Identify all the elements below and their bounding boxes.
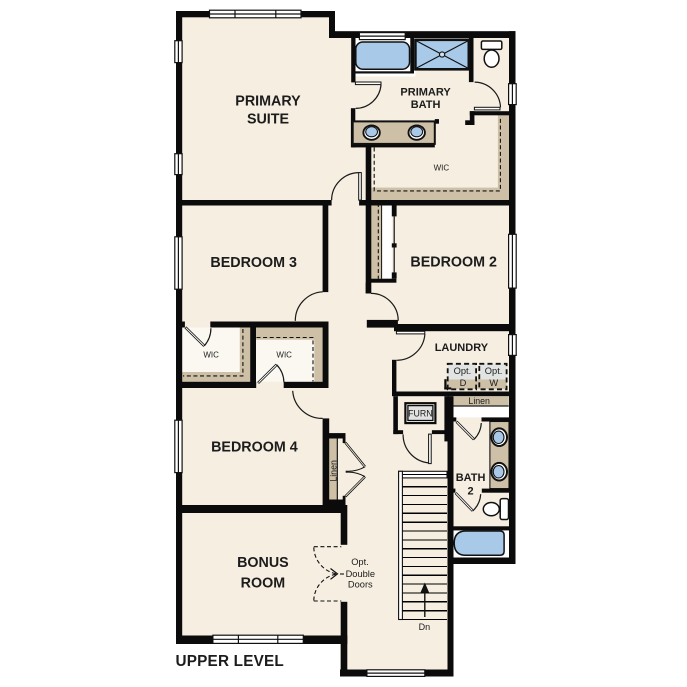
svg-text:PRIMARY: PRIMARY: [400, 86, 451, 98]
svg-text:Double: Double: [346, 569, 375, 579]
svg-text:Doors: Doors: [348, 579, 373, 589]
svg-text:BEDROOM 4: BEDROOM 4: [211, 440, 298, 456]
svg-text:FURN: FURN: [408, 409, 432, 419]
svg-text:SUITE: SUITE: [247, 111, 289, 127]
svg-text:W: W: [489, 378, 498, 388]
svg-text:LAUNDRY: LAUNDRY: [435, 342, 489, 354]
svg-text:WIC: WIC: [434, 164, 450, 173]
svg-text:D: D: [460, 378, 467, 388]
svg-text:ROOM: ROOM: [241, 576, 285, 592]
svg-text:WIC: WIC: [203, 351, 219, 360]
svg-text:Dn: Dn: [419, 622, 431, 632]
svg-text:2: 2: [468, 486, 474, 498]
svg-text:BATH: BATH: [456, 472, 486, 484]
svg-text:Opt.: Opt.: [351, 557, 369, 567]
svg-text:BATH: BATH: [411, 99, 441, 111]
svg-text:Linen: Linen: [468, 396, 490, 406]
svg-text:WIC: WIC: [276, 351, 292, 360]
svg-text:Opt.: Opt.: [485, 366, 503, 376]
svg-text:Opt.: Opt.: [454, 366, 472, 376]
svg-text:BONUS: BONUS: [237, 555, 289, 571]
svg-text:BEDROOM 2: BEDROOM 2: [410, 254, 497, 270]
svg-text:UPPER LEVEL: UPPER LEVEL: [176, 653, 284, 670]
svg-text:BEDROOM 3: BEDROOM 3: [210, 255, 297, 271]
svg-text:PRIMARY: PRIMARY: [235, 94, 301, 110]
svg-text:Linen: Linen: [329, 460, 339, 482]
